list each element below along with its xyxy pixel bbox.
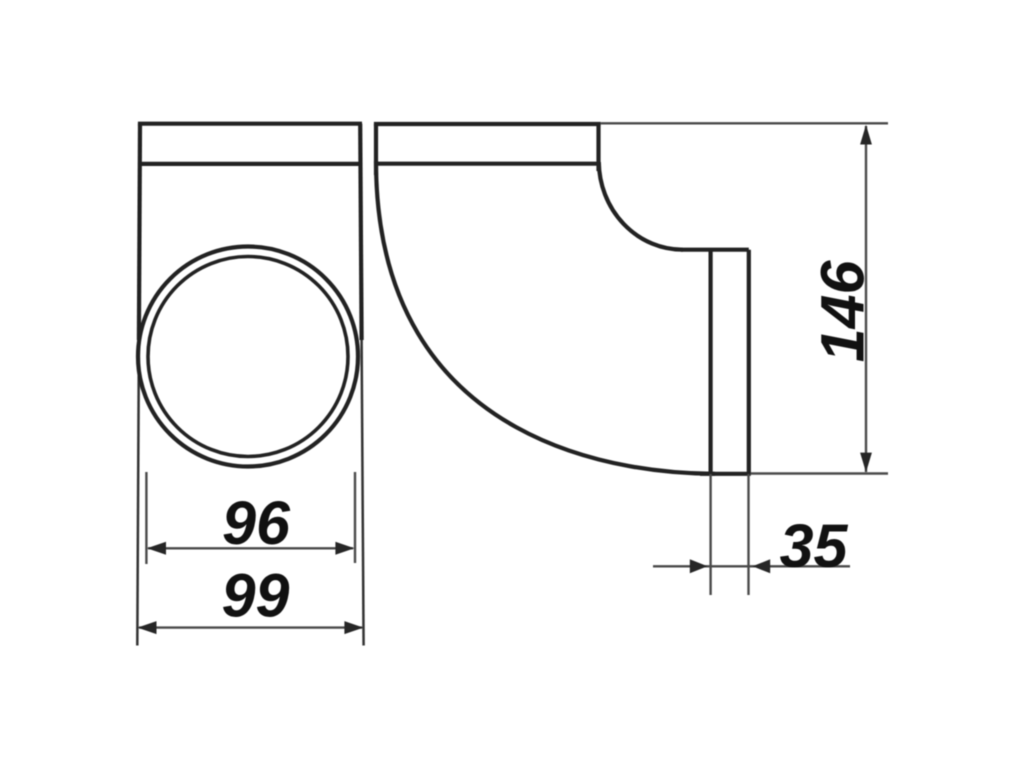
- svg-text:96: 96: [222, 489, 291, 557]
- svg-text:146: 146: [809, 259, 877, 362]
- svg-text:35: 35: [780, 512, 849, 580]
- svg-text:99: 99: [222, 562, 290, 630]
